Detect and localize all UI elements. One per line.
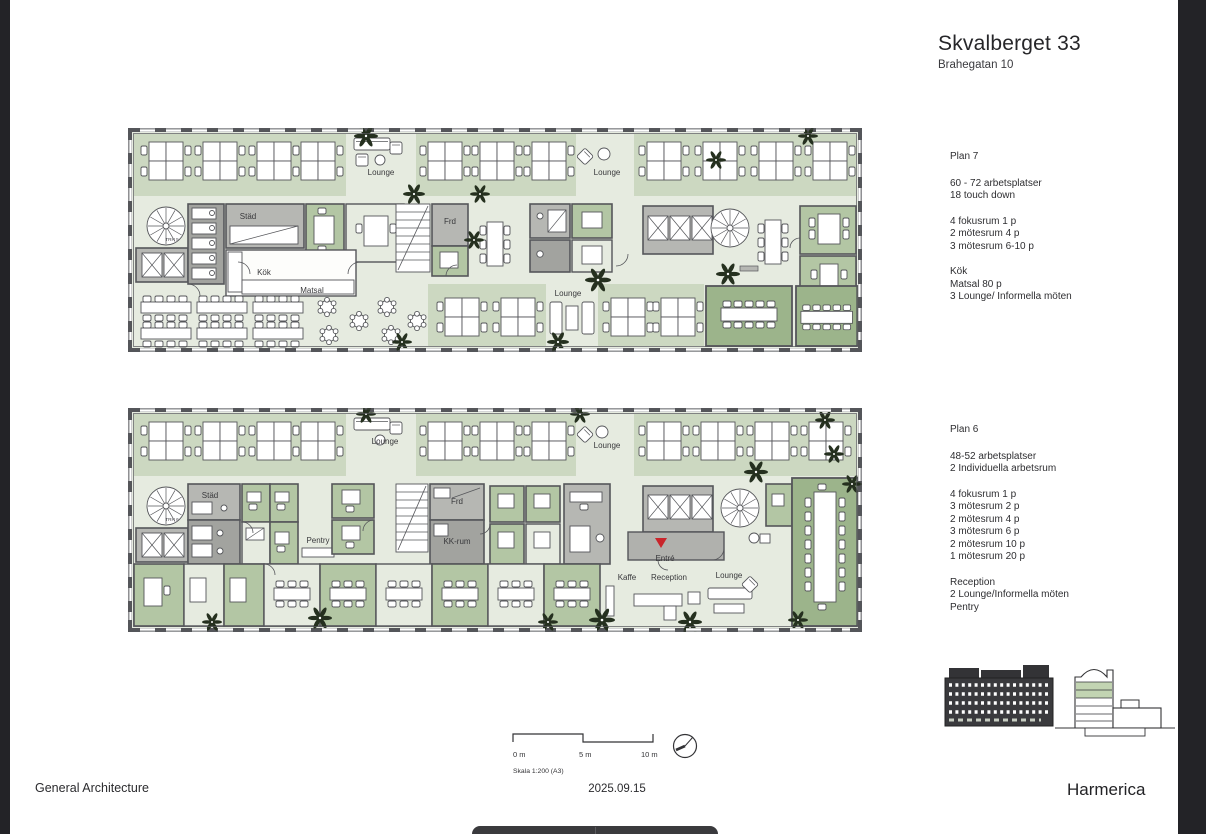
plan6-floorplan: Lounge Lounge TRH 6 Städ (128, 408, 862, 632)
room-label: Lounge (368, 168, 395, 177)
elevator-left (136, 248, 188, 282)
open-meeting-table (480, 222, 510, 266)
stairwell-right (711, 209, 749, 247)
room-frd: Frd (430, 484, 484, 520)
room-stad: Städ (226, 204, 304, 248)
area-label-matsal: Matsal (300, 286, 324, 295)
elevator-bank (643, 486, 713, 532)
room-label: Lounge (594, 441, 621, 450)
sheet-date: 2025.09.15 (562, 783, 672, 795)
room-kok: Kök (226, 250, 356, 296)
plan6-workplaces: 48-52 arbetsplatser 2 Individuella arbet… (950, 451, 1170, 476)
stair-label: TRH 6 (165, 517, 179, 522)
stairwell: TRH 6 (147, 487, 185, 525)
brand-name: Harmerica (1067, 780, 1145, 800)
drawing-sheet: Skvalberget 33 Brahegatan 10 Lounge (10, 0, 1178, 834)
svg-text:Kök: Kök (257, 268, 272, 277)
plan7-amenities: Kök Matsal 80 p 3 Lounge/ Informella möt… (950, 266, 1170, 304)
stairs-straight (396, 484, 428, 552)
north-arrow-icon (670, 730, 702, 762)
elevator-bank (643, 206, 713, 254)
building-elevations (935, 658, 1180, 753)
meeting-room (800, 206, 856, 254)
room-label: Lounge (555, 289, 582, 298)
project-title: Skvalberget 33 (938, 32, 1081, 56)
plan6-amenities: Reception 2 Lounge/Informella möten Pent… (950, 577, 1170, 615)
scale-tick-10: 10 m (641, 750, 658, 759)
plan6-label: Plan 6 (950, 424, 1170, 437)
elevation-section (1055, 670, 1175, 737)
svg-text:Städ: Städ (202, 491, 218, 500)
title-block: Skvalberget 33 Brahegatan 10 (938, 32, 1081, 71)
stairwell: TRH 5 (147, 207, 185, 245)
plan7-label: Plan 7 (950, 151, 1170, 164)
stair-label: TRH 5 (165, 237, 179, 242)
meeting-room-large (796, 286, 858, 346)
plan7-info: Plan 7 60 - 72 arbetsplatser 18 touch do… (950, 151, 1170, 304)
stairs-straight (396, 204, 430, 272)
individual-office (564, 484, 610, 564)
svg-text:Frd: Frd (444, 217, 456, 226)
plan7-workplaces: 60 - 72 arbetsplatser 18 touch down (950, 178, 1170, 203)
elevation-front (945, 665, 1053, 726)
svg-text:Städ: Städ (240, 212, 256, 221)
viewer-background-right (1178, 0, 1206, 834)
plan6-rooms: 4 fokusrum 1 p 3 mötesrum 2 p 2 mötesrum… (950, 489, 1170, 564)
svg-text:Frd: Frd (451, 497, 463, 506)
entre-area: Entré (628, 532, 724, 563)
scale-tick-0: 0 m (513, 750, 526, 759)
scale-tick-5: 5 m (579, 750, 592, 759)
viewer-background-left (0, 0, 10, 834)
svg-text:KK-rum: KK-rum (443, 537, 470, 546)
architect-name: General Architecture (35, 781, 149, 795)
room-label: Lounge (372, 437, 399, 446)
plan7-rooms: 4 fokusrum 1 p 2 mötesrum 4 p 3 mötesrum… (950, 216, 1170, 254)
scale-bar: 0 m 5 m 10 m Skala 1:200 (A3) (505, 727, 670, 777)
elevator-left (136, 528, 188, 562)
plan7-floorplan: Lounge Lounge TRH 5 Städ (128, 128, 862, 352)
svg-text:Reception: Reception (651, 573, 687, 582)
conference-room-20p (792, 478, 858, 626)
viewer-toolbar[interactable] (472, 826, 718, 834)
room-label: Lounge (716, 571, 743, 580)
wc-block (188, 204, 224, 284)
small-meeting-room (766, 484, 792, 526)
room-label: Lounge (594, 168, 621, 177)
wc-block (188, 520, 240, 564)
svg-text:Kaffe: Kaffe (618, 573, 637, 582)
toolbar-divider (595, 827, 596, 834)
room-kkrum: KK-rum (430, 520, 484, 564)
plan6-info: Plan 6 48-52 arbetsplatser 2 Individuell… (950, 424, 1170, 614)
meeting-room-large (706, 286, 792, 346)
fokusrum-cluster (242, 484, 298, 564)
scale-label: Skala 1:200 (A3) (513, 768, 564, 775)
room-stad: Städ (188, 484, 240, 520)
room-frd: Frd (432, 204, 468, 276)
svg-text:Pentry: Pentry (306, 536, 329, 545)
bottom-rooms (134, 564, 600, 626)
project-address: Brahegatan 10 (938, 59, 1081, 71)
